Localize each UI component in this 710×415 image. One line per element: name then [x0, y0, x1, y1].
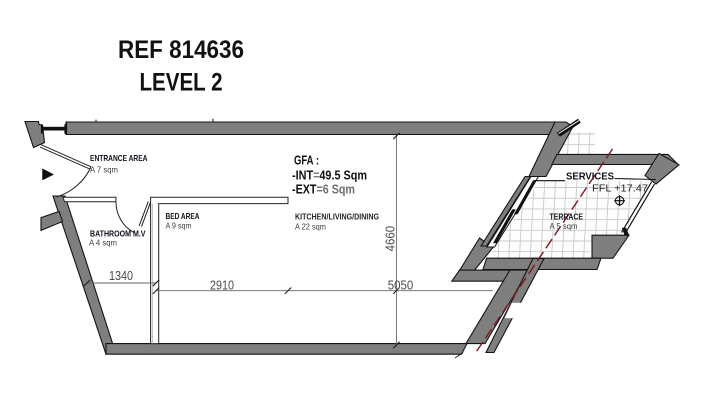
svg-text:5050: 5050 [388, 279, 414, 293]
svg-text:BED AREA: BED AREA [166, 211, 200, 221]
svg-text:1340: 1340 [109, 269, 133, 283]
svg-text:TERRACE: TERRACE [550, 212, 584, 222]
svg-text:REF 814636: REF 814636 [118, 36, 244, 64]
svg-text:GFA :: GFA : [294, 152, 319, 167]
svg-text:A 22 sqm: A 22 sqm [295, 222, 326, 232]
svg-text:A 9 sqm: A 9 sqm [166, 221, 192, 231]
svg-text:SERVICES: SERVICES [566, 172, 614, 183]
svg-text:A 7 sqm: A 7 sqm [90, 165, 118, 175]
svg-text:A 4 sqm: A 4 sqm [89, 238, 117, 248]
svg-text:FFL +17.47: FFL +17.47 [592, 183, 648, 195]
svg-text:LEVEL 2: LEVEL 2 [140, 69, 223, 97]
svg-text:2910: 2910 [210, 279, 234, 293]
svg-text:ENTRANCE AREA: ENTRANCE AREA [90, 153, 148, 163]
svg-text:A 5 sqm: A 5 sqm [550, 221, 578, 231]
svg-text:-INT=49.5 Sqm: -INT=49.5 Sqm [292, 168, 367, 183]
svg-text:KITCHEN/LIVING/DINING: KITCHEN/LIVING/DINING [295, 212, 379, 222]
svg-text:4660: 4660 [382, 226, 397, 252]
svg-text:-EXT=6 Sqm: -EXT=6 Sqm [292, 182, 355, 197]
